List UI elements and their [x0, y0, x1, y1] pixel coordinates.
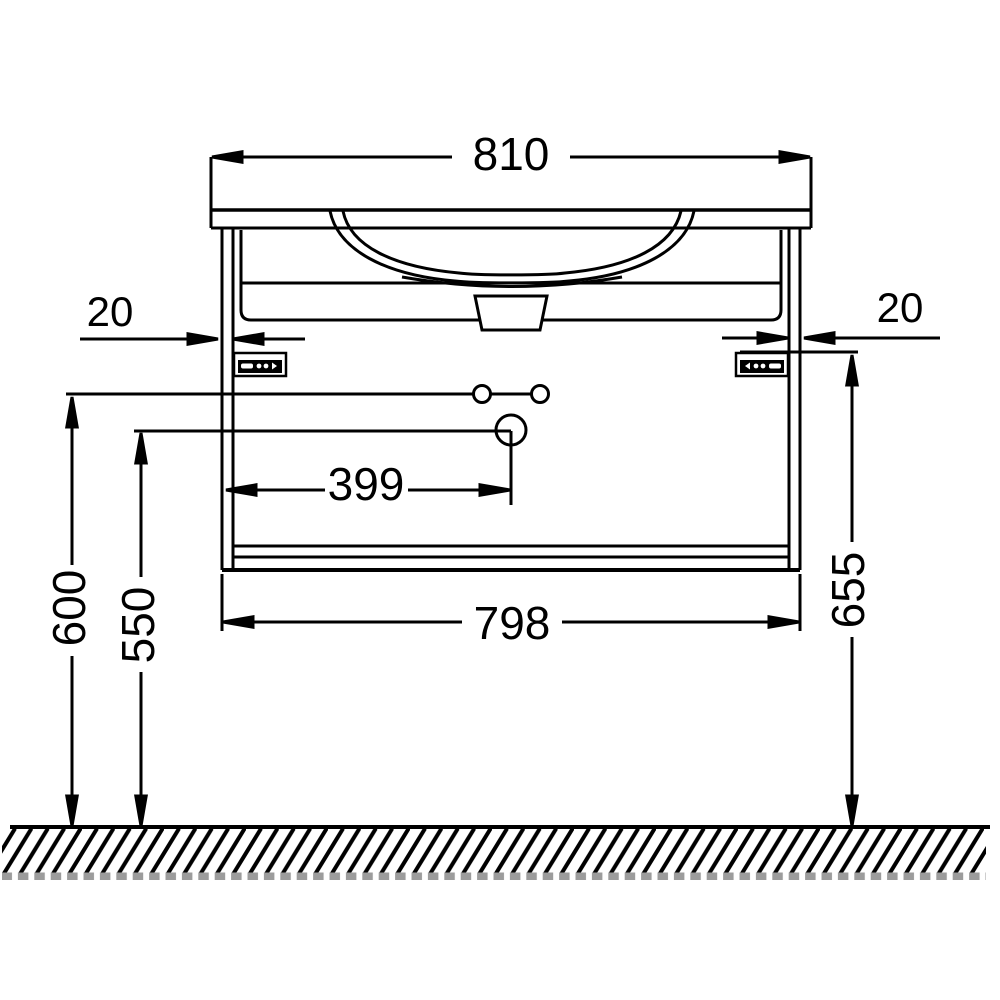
mounting-bracket-left [234, 353, 286, 376]
dim-550-label: 550 [112, 587, 164, 664]
technical-drawing-page: 810 20 20 399 [0, 0, 1000, 1000]
ground-hatching [2, 829, 986, 873]
fixing-hole-left [474, 386, 491, 403]
mounting-bracket-right [736, 353, 788, 376]
drain-outlet [475, 296, 547, 330]
dim-655-label: 655 [822, 552, 874, 629]
dim-20-right-label: 20 [877, 284, 924, 331]
dim-399-label: 399 [328, 458, 405, 510]
dim-20-left-label: 20 [87, 288, 134, 335]
vanity-dimension-drawing: 810 20 20 399 [0, 0, 1000, 1000]
fixing-hole-right [532, 386, 549, 403]
dim-810-label: 810 [473, 128, 550, 180]
dim-798-label: 798 [474, 597, 551, 649]
dim-600-label: 600 [43, 570, 95, 647]
ground-hatch-residue [2, 872, 986, 881]
floor-line [2, 827, 990, 881]
